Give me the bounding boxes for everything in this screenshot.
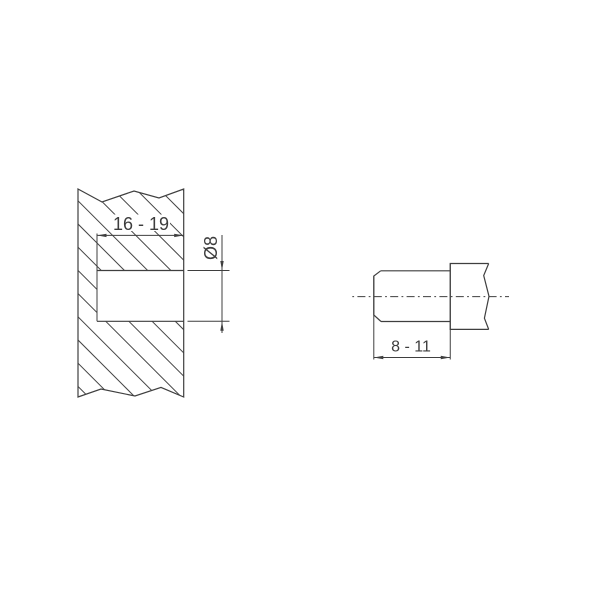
svg-text:Ø8: Ø8 xyxy=(201,236,221,260)
svg-text:8 - 11: 8 - 11 xyxy=(391,339,431,356)
svg-text:16 - 19: 16 - 19 xyxy=(113,214,169,234)
